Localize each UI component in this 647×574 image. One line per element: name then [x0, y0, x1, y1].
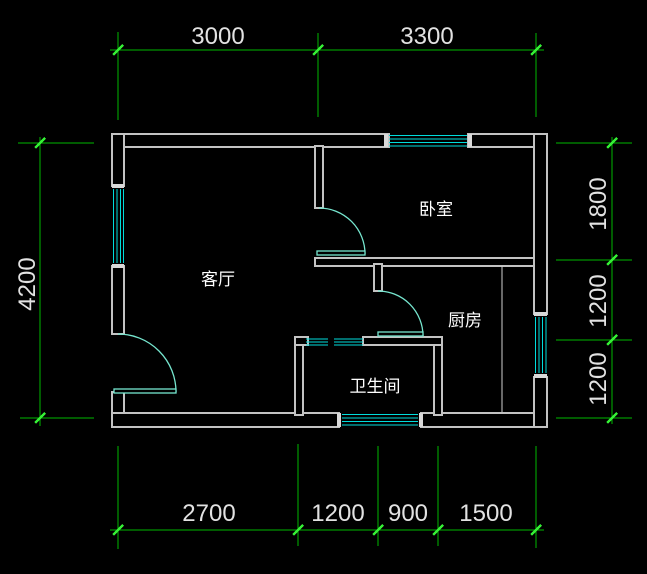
- dim-label-bottom-1: 2700: [182, 500, 235, 527]
- wall-left-middle: [112, 266, 124, 334]
- window-right: [534, 312, 547, 378]
- window-top: [384, 134, 472, 147]
- bedroom-door-leaf: [317, 251, 365, 255]
- wall-bathroom-top-left: [295, 337, 308, 345]
- wall-right-upper: [534, 134, 547, 314]
- wall-kitchen-door-jamb: [374, 264, 382, 291]
- dimension-bottom: 2700 1200 900 1500: [110, 444, 544, 549]
- dimension-left: 4200: [14, 137, 94, 426]
- window-cap: [112, 264, 124, 268]
- window-left: [112, 184, 124, 268]
- room-label-kitchen: 厨房: [448, 311, 482, 330]
- dim-label-bottom-3: 900: [388, 500, 428, 527]
- wall-partition-bedroom: [315, 146, 323, 208]
- wall-right-lower: [534, 377, 547, 427]
- floor-plan-svg: 3000 3300 2700 1200 900 1500 4200: [0, 0, 647, 574]
- window-cap: [534, 312, 547, 316]
- walls: [112, 134, 547, 427]
- window-cap: [534, 374, 547, 378]
- window-cap: [468, 134, 472, 147]
- window-cap: [419, 413, 423, 427]
- dim-label-bottom-2: 1200: [311, 500, 364, 527]
- window-bottom: [337, 413, 423, 427]
- doors: [114, 208, 423, 393]
- dimension-top: 3000 3300: [110, 23, 544, 120]
- cad-drawing-canvas[interactable]: 3000 3300 2700 1200 900 1500 4200: [0, 0, 647, 574]
- window-bathroom-dashed: [306, 339, 363, 345]
- window-cap: [337, 413, 341, 427]
- windows: [112, 134, 547, 427]
- dim-label-top-1: 3000: [191, 23, 244, 50]
- dim-label-bottom-4: 1500: [459, 500, 512, 527]
- dim-label-right-1: 1800: [585, 177, 612, 230]
- wall-bathroom-left: [295, 337, 303, 415]
- bedroom-door-arc: [319, 208, 365, 254]
- dim-label-right-2: 1200: [585, 274, 612, 327]
- wall-bottom-left: [112, 413, 339, 427]
- kitchen-door-leaf: [378, 332, 423, 336]
- room-label-living-room: 客厅: [201, 270, 235, 289]
- kitchen-door-arc: [378, 291, 423, 336]
- dim-label-right-3: 1200: [585, 352, 612, 405]
- entry-door-leaf: [114, 389, 176, 393]
- entry-door-arc: [118, 334, 176, 392]
- wall-bathroom-top-right: [363, 337, 442, 345]
- window-cap: [384, 134, 388, 147]
- wall-bathroom-right: [434, 337, 442, 415]
- window-cap: [112, 184, 124, 188]
- wall-corridor: [315, 258, 534, 266]
- room-label-bedroom: 卧室: [419, 200, 453, 219]
- wall-left-upper: [112, 134, 124, 186]
- dim-label-top-2: 3300: [400, 23, 453, 50]
- wall-top-left: [112, 134, 389, 147]
- room-label-bathroom: 卫生间: [350, 377, 401, 396]
- dim-label-left-1: 4200: [14, 257, 41, 310]
- dimension-right: 1800 1200 1200: [556, 137, 632, 424]
